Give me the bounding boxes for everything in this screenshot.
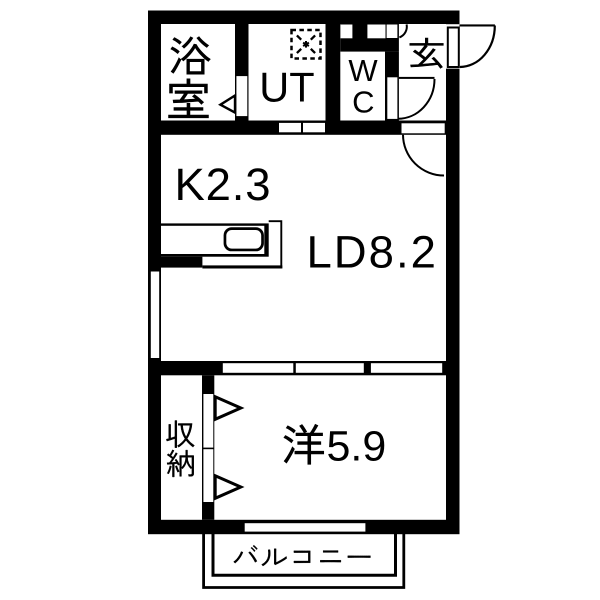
svg-text:UT: UT [259,63,314,110]
svg-text:C: C [352,85,374,120]
svg-text:W: W [348,53,378,88]
svg-text:LD8.2: LD8.2 [307,227,438,278]
svg-text:5.9: 5.9 [327,423,387,471]
svg-text:K2.3: K2.3 [175,159,272,210]
